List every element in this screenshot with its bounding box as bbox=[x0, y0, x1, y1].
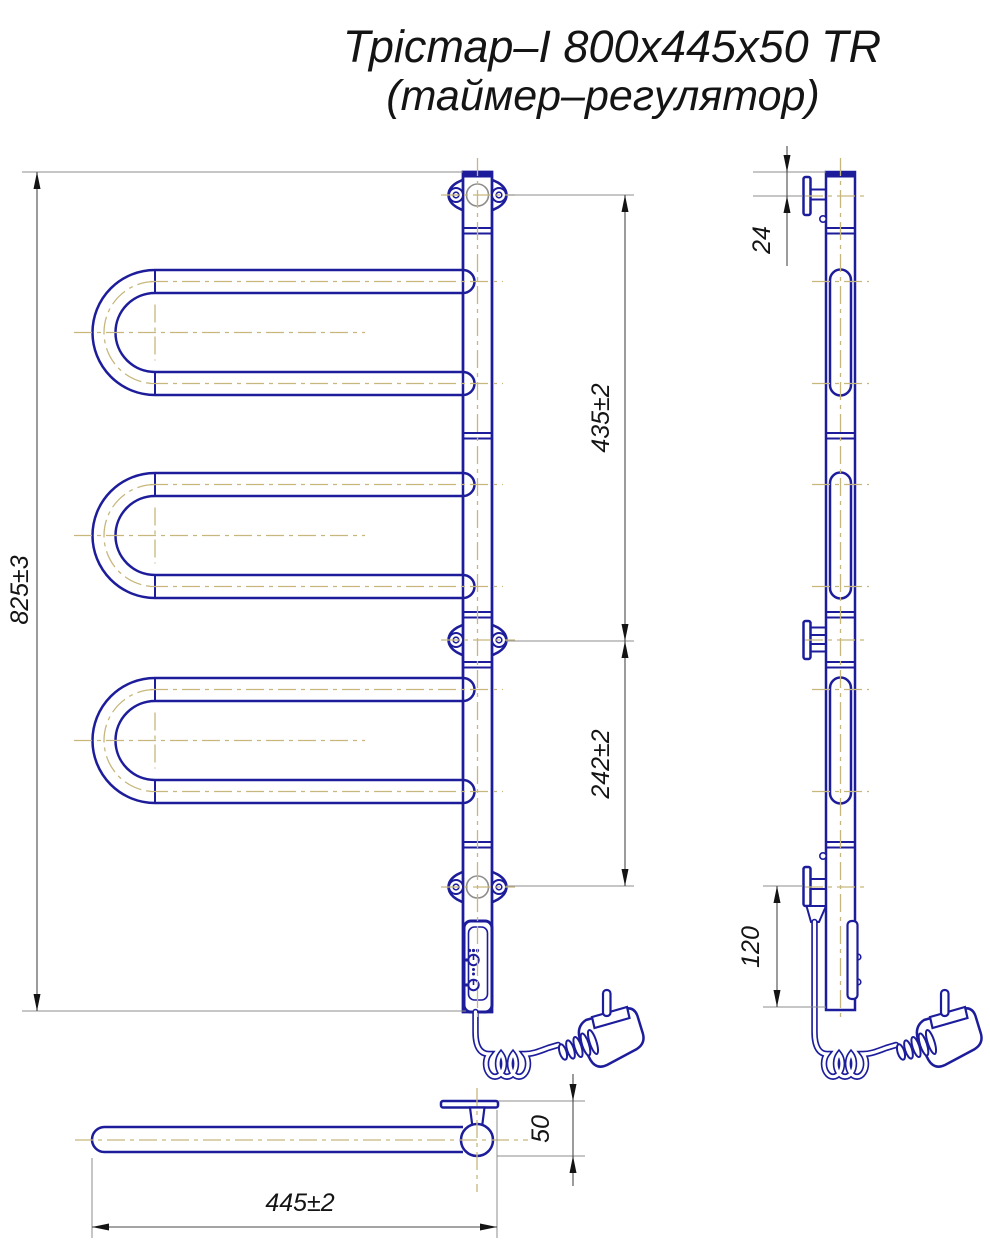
bracket-arm-mid2 bbox=[811, 644, 827, 652]
dim-label-bottom-offset: 120 bbox=[737, 926, 765, 968]
dim-depth: 50 bbox=[527, 1074, 577, 1186]
set-screw-top bbox=[820, 216, 826, 222]
dim-label-top-offset: 24 bbox=[748, 226, 776, 255]
dim-label-depth: 50 bbox=[527, 1115, 555, 1143]
bracket-arm-mid1 bbox=[811, 628, 827, 636]
plug-pin-side bbox=[941, 990, 949, 1016]
side-view bbox=[804, 158, 982, 1077]
control-panel-side bbox=[848, 921, 861, 999]
dim-bracket-spacings: 435±2 242±2 bbox=[587, 195, 629, 886]
title-line2: (таймер–регулятор) bbox=[386, 72, 819, 120]
plug-pin-front bbox=[603, 990, 611, 1016]
power-cord-front bbox=[476, 990, 644, 1077]
title-line1: Трістар–І 800х445х50 TR bbox=[343, 21, 881, 72]
set-screw-bottom bbox=[820, 853, 826, 859]
dim-label-overall-width: 445±2 bbox=[265, 1189, 334, 1217]
dim-overall-height: 825±3 bbox=[6, 172, 41, 1011]
front-view bbox=[74, 158, 644, 1077]
dim-bottom-offset: 120 bbox=[737, 886, 781, 1007]
bottom-view bbox=[75, 1088, 528, 1192]
bracket-arm-top bbox=[811, 190, 827, 200]
drawing-svg: Трістар–І 800х445х50 TR (таймер–регулято… bbox=[0, 0, 990, 1255]
technical-drawing-page: Трістар–І 800х445х50 TR (таймер–регулято… bbox=[0, 0, 990, 1255]
dim-overall-width: 445±2 bbox=[92, 1189, 497, 1231]
dim-top-offset: 24 bbox=[748, 146, 791, 266]
dim-label-spacing-upper: 435±2 bbox=[587, 383, 615, 452]
dim-label-spacing-lower: 242±2 bbox=[587, 729, 615, 799]
drawing-title: Трістар–І 800х445х50 TR (таймер–регулято… bbox=[343, 21, 881, 120]
dim-label-overall-height: 825±3 bbox=[6, 555, 34, 624]
